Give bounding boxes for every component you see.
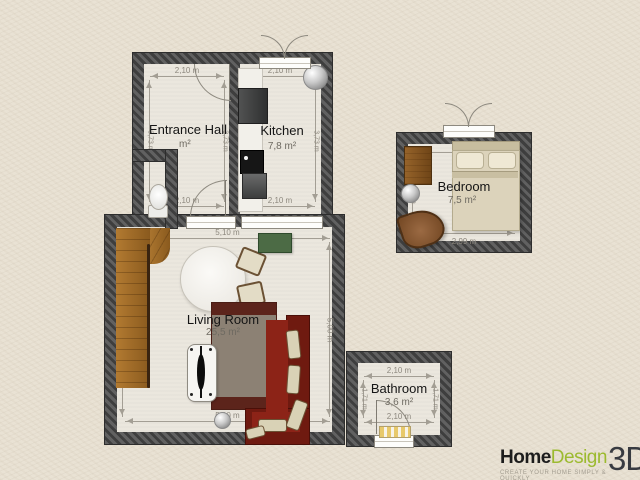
room-label-entrance-hall: Entrance Hall (138, 122, 238, 137)
radiator-screw (190, 393, 193, 396)
dimension-line: 3,73 m (149, 80, 150, 202)
radiator-screw (209, 393, 212, 396)
cooktop-knob (244, 156, 248, 160)
dim-label: 2,10 m (387, 366, 411, 375)
bedroom-door-leaf-arc[interactable] (468, 103, 492, 127)
room-area-kitchen: 7,8 m² (243, 141, 321, 152)
pillow (488, 152, 516, 169)
sofa-seat[interactable] (266, 320, 288, 412)
dimension-line: 5,00 m (329, 242, 330, 417)
pillow (456, 152, 484, 169)
kitchen-door-leaf-arc[interactable] (284, 35, 308, 59)
tv-stand-icon[interactable] (258, 233, 292, 253)
dimension-line: 1,71 m (434, 380, 435, 418)
dim-label: 5,00 m (326, 317, 335, 341)
radiator-lens (197, 354, 205, 390)
hall-living-opening[interactable] (186, 216, 236, 229)
room-label-kitchen: Kitchen (243, 123, 321, 138)
radiator-screw (209, 348, 212, 351)
room-area-entrance-hall: m² (179, 139, 191, 150)
kitchen-door-leaf-arc[interactable] (261, 35, 285, 59)
fridge-icon[interactable] (238, 88, 268, 124)
logo-design-text: Design (551, 447, 607, 469)
bedroom-lamp-icon[interactable] (401, 184, 420, 203)
hall-door-leaf[interactable] (229, 64, 230, 100)
bedroom-door-leaf-arc[interactable] (445, 103, 469, 127)
dim-label: 5,10 m (215, 228, 239, 237)
cooktop-icon[interactable] (240, 150, 264, 174)
logo-home-text: Home (500, 447, 551, 469)
dim-label: 2,10 m (268, 196, 292, 205)
toilet-icon[interactable] (149, 184, 168, 210)
stair-handrail (147, 244, 150, 388)
radiator-screw (190, 348, 193, 351)
kitchen-appliance[interactable] (242, 173, 267, 199)
bathroom-door-leaf[interactable] (376, 400, 377, 434)
duvet-fold (452, 171, 518, 178)
bath-mat[interactable] (379, 426, 411, 438)
hall-living-door-leaf[interactable] (225, 180, 226, 216)
room-label-bathroom: Bathroom (364, 381, 434, 396)
staircase[interactable] (116, 228, 150, 388)
dimension-line: 2,10 m (364, 376, 434, 377)
sofa-cushion (286, 365, 301, 395)
logo-tagline: CREATE YOUR HOME SIMPLY & QUICKLY (500, 470, 607, 480)
floor-plan: 2,10 m 2,10 m 3,73 m 3,73 m 2,10 m 2,10 … (0, 0, 640, 480)
room-area-living-room: 25,5 m² (190, 327, 256, 338)
room-label-bedroom: Bedroom (428, 179, 500, 194)
floor-ball-icon[interactable] (214, 412, 231, 429)
logo-3d-text: 3D (608, 447, 640, 471)
kitchen-living-opening[interactable] (241, 216, 323, 229)
homedesign3d-logo: HomeDesign CREATE YOUR HOME SIMPLY & QUI… (500, 447, 640, 480)
room-label-living-room: Living Room (181, 312, 265, 327)
room-area-bedroom: 7,5 m² (432, 195, 492, 206)
dim-label: 2,99 m (452, 237, 476, 246)
